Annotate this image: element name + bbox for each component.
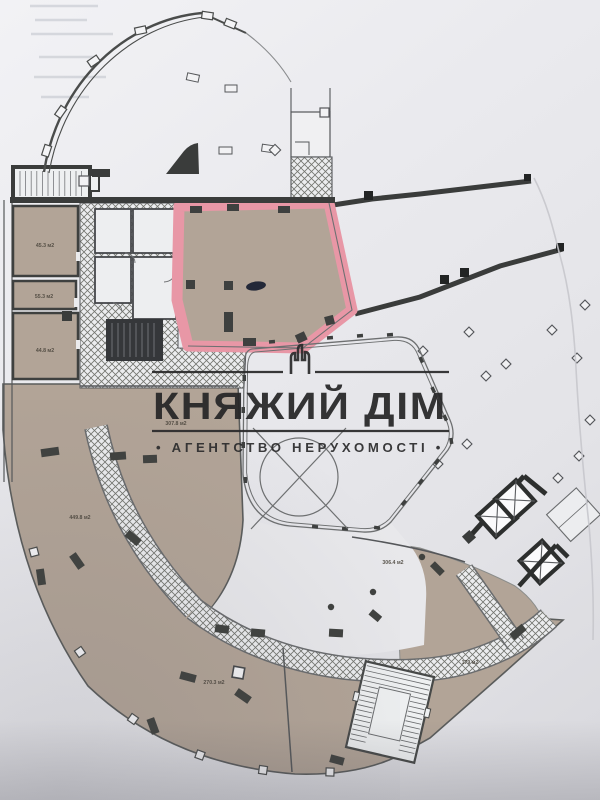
highlighted-unit xyxy=(177,203,352,348)
room xyxy=(13,206,78,276)
room-area-label: 179 м2 xyxy=(462,660,479,666)
room-area-label: 45.3 м2 xyxy=(36,243,54,249)
floor-plan: 45.3 м2 55.3 м2 44.8 м2 307.8 м2 449.8 м… xyxy=(0,0,600,800)
paper-shadow-corner xyxy=(0,400,400,800)
dark-block xyxy=(92,169,110,177)
room xyxy=(13,313,78,379)
interior-stair xyxy=(106,319,163,361)
main-wall xyxy=(10,197,335,203)
room-area-label: 55.3 м2 xyxy=(35,294,53,300)
small-rooms xyxy=(95,209,176,319)
floorplan-photo: 45.3 м2 55.3 м2 44.8 м2 307.8 м2 449.8 м… xyxy=(0,0,600,800)
room-area-label: 44.8 м2 xyxy=(36,348,54,354)
